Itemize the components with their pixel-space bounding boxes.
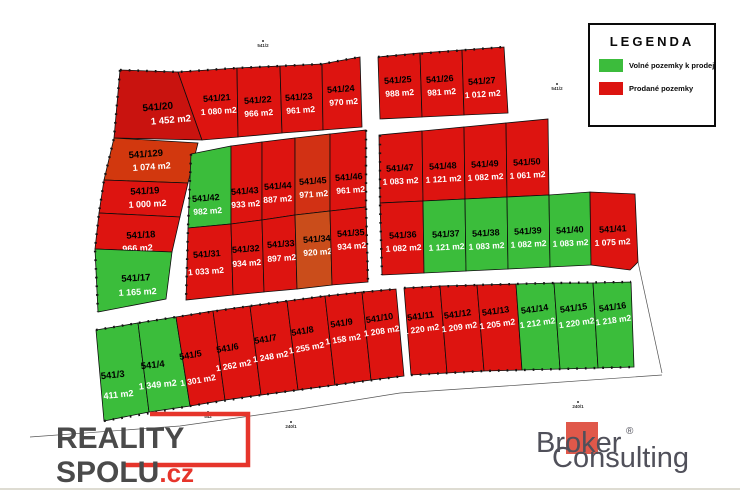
legend-free-label: Volné pozemky k prodeji [629,61,716,70]
plot-area: 1 083 m2 [382,175,419,187]
plot-541-129: 541/1291 074 m2 [104,138,198,183]
plot-541-44: 541/44887 m2 [262,138,295,220]
plot-number: 541/22 [244,94,272,106]
plot-area: 1 075 m2 [594,236,631,248]
plot-number: 541/37 [432,228,460,239]
parcel-ref-541-2: 541/2 [551,83,563,91]
parcel-ref-label: 541/2 [551,86,563,91]
plot-541-17: 541/171 165 m2 [95,249,172,312]
plot-area: 934 m2 [337,240,367,252]
plot-area: 988 m2 [385,87,415,99]
plot-number: 541/44 [264,180,292,192]
plot-541-16: 541/161 218 m2 [593,282,634,368]
free-plots-swatch [599,59,623,72]
reality-spolu-logo: REALITY SPOLU.cz [28,408,263,493]
plot-541-50: 541/501 061 m2 [506,119,549,197]
sold-plots-swatch [599,82,623,95]
plot-541-42: 541/42982 m2 [188,146,231,228]
plot-polygon [378,53,422,119]
plot-area: 1 082 m2 [467,171,504,183]
plot-541-37: 541/371 121 m2 [423,199,466,273]
parcel-ref-label: 240/1 [285,424,297,429]
plot-541-38: 541/381 083 m2 [465,197,508,271]
plot-area: 1 082 m2 [510,238,547,250]
legend-title: LEGENDA [590,34,714,49]
plot-map-image: 541/201 452 m2541/1291 074 m2541/191 000… [0,0,740,493]
plot-number: 541/34 [303,233,331,245]
plot-number: 541/19 [130,185,160,198]
plot-541-36: 541/361 082 m2 [380,201,424,275]
plot-number: 541/50 [513,156,541,167]
plot-541-41: 541/411 075 m2 [590,192,638,270]
plot-541-27: 541/271 012 m2 [462,47,508,115]
plot-number: 541/26 [426,73,454,85]
plot-number: 541/40 [556,224,584,235]
plot-541-35: 541/35934 m2 [330,207,368,285]
plot-541-48: 541/481 121 m2 [422,127,465,201]
plot-polygon [231,142,262,224]
plot-number: 541/46 [335,171,363,183]
plot-polygon [104,138,198,183]
plot-541-19: 541/191 000 m2 [99,180,188,217]
plot-number: 541/45 [299,175,327,187]
parcel-ref-240-1: 240/1 [285,421,297,429]
plot-541-25: 541/25988 m2 [378,53,422,119]
plot-541-22: 541/22966 m2 [237,66,282,137]
plot-area: 1 000 m2 [128,198,167,210]
plot-number: 541/48 [429,160,457,171]
plot-541-39: 541/391 082 m2 [507,195,550,269]
plot-area: 981 m2 [427,86,457,98]
legend-item-free: Volné pozemky k prodeji [599,59,714,72]
plot-area: 1 083 m2 [468,240,505,252]
plot-number: 541/24 [327,83,355,95]
registered-trademark-icon: ® [626,426,634,437]
reality-logo-line1: REALITY [56,422,184,455]
parcel-ref-dot [262,40,264,42]
plot-area: 961 m2 [286,104,316,116]
plot-number: 541/49 [471,158,499,169]
plot-number: 541/38 [472,227,500,238]
plot-541-43: 541/43933 m2 [230,142,262,224]
plot-541-49: 541/491 082 m2 [464,123,507,199]
legend: LEGENDA Volné pozemky k prodeji Prodané … [588,23,716,127]
plot-541-26: 541/26981 m2 [420,50,464,117]
plot-number: 541/41 [599,223,627,234]
plot-number: 541/21 [203,92,231,104]
image-bottom-edge [0,488,740,490]
plot-number: 541/39 [514,225,542,236]
legend-sold-label: Prodané pozemky [629,84,693,93]
plot-area: 1 082 m2 [385,242,422,254]
plot-541-18: 541/18966 m2 [95,213,180,254]
plot-541-11: 541/111 220 m2 [401,286,447,375]
plot-area: 920 m2 [303,246,333,258]
broker-consulting-logo: Broker ® Consulting [526,416,726,483]
plot-area: 982 m2 [193,205,223,217]
parcel-ref-dot [577,401,579,403]
plot-541-31: 541/311 033 m2 [186,224,233,300]
plot-541-24: 541/24970 m2 [322,57,362,130]
plot-number: 541/18 [126,229,156,242]
plot-541-12: 541/121 209 m2 [439,285,484,373]
plot-area: 934 m2 [232,257,262,269]
plot-541-40: 541/401 083 m2 [549,192,591,267]
parcel-ref-label: 240/1 [572,404,584,409]
plot-number: 541/35 [337,227,365,239]
broker-logo-word2: Consulting [552,442,689,474]
plot-number: 541/47 [386,162,414,173]
plot-541-32: 541/32934 m2 [231,220,264,295]
plot-area: 933 m2 [231,198,261,210]
plot-541-14: 541/141 212 m2 [516,283,560,370]
reality-logo-line2: SPOLU.cz [56,456,194,489]
plot-541-34: 541/34920 m2 [295,211,333,289]
plot-541-13: 541/131 205 m2 [477,284,522,371]
plot-area: 1 061 m2 [509,169,546,181]
plot-number: 541/23 [285,91,313,103]
plot-number: 541/25 [384,74,412,86]
plot-area: 1 165 m2 [118,286,157,298]
legend-item-sold: Prodané pozemky [599,82,714,95]
plot-area: 961 m2 [336,184,366,196]
reality-logo-tld: .cz [159,458,194,488]
plot-541-23: 541/23961 m2 [280,64,323,133]
plot-polygon [186,224,233,300]
survey-line [638,262,662,373]
plot-area: 1 121 m2 [428,241,465,253]
plot-number: 541/32 [232,243,260,255]
plot-541-47: 541/471 083 m2 [379,131,423,203]
plot-area: 887 m2 [263,193,293,205]
plot-541-46: 541/46961 m2 [330,130,366,211]
plot-area: 966 m2 [244,107,274,119]
plot-area: 970 m2 [329,96,359,108]
plot-number: 541/36 [389,229,417,240]
plot-541-33: 541/33897 m2 [262,215,297,292]
parcel-ref-541-2: 541/2 [257,40,269,48]
plot-number: 541/27 [468,75,496,87]
plot-area: 1 121 m2 [425,173,462,185]
plot-541-15: 541/151 220 m2 [554,283,598,369]
parcel-ref-240-1: 240/1 [572,401,584,409]
plot-area: 1 083 m2 [552,237,589,249]
plot-area: 897 m2 [267,252,297,264]
parcel-ref-dot [290,421,292,423]
plot-area: 971 m2 [299,188,329,200]
plot-number: 541/17 [121,272,151,285]
parcel-ref-label: 541/2 [257,43,269,48]
plot-541-45: 541/45971 m2 [295,134,330,215]
parcel-ref-dot [556,83,558,85]
plot-number: 541/31 [193,248,221,260]
plot-polygon [262,138,295,220]
plot-number: 541/43 [231,185,259,197]
plot-number: 541/33 [267,238,295,250]
plot-number: 541/42 [192,192,220,204]
